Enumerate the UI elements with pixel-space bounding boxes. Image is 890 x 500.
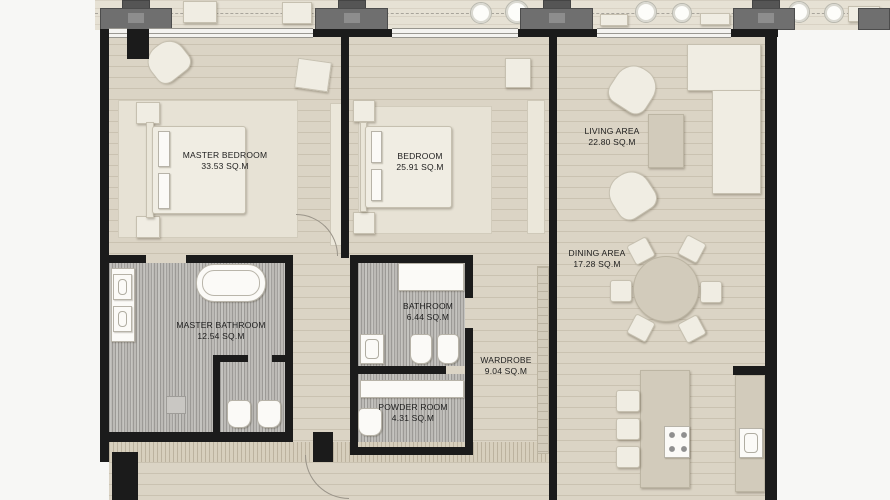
dining-table <box>633 256 699 322</box>
bench <box>294 58 332 92</box>
dining-chair <box>610 280 632 302</box>
room-label-wardrobe: WARDROBE 9.04 SQ.M <box>480 355 531 377</box>
balcony-lounger <box>183 1 217 23</box>
wall-living-divider <box>549 29 557 262</box>
wall-powder-top <box>358 366 446 374</box>
balcony-plant <box>824 3 844 23</box>
toilet <box>410 334 432 364</box>
room-area: 25.91 SQ.M <box>396 162 443 173</box>
bidet <box>437 334 459 364</box>
toilet <box>227 400 251 428</box>
sink <box>113 306 132 332</box>
balcony-plant <box>635 1 657 23</box>
room-name: LIVING AREA <box>584 126 639 137</box>
nightstand <box>136 102 160 124</box>
sink <box>113 274 132 300</box>
room-label-bedroom: BEDROOM 25.91 SQ.M <box>396 151 443 173</box>
room-area: 4.31 SQ.M <box>378 413 447 424</box>
room-name: WARDROBE <box>480 355 531 366</box>
wall-wc <box>272 355 285 362</box>
nightstand <box>353 100 375 122</box>
bar-stool <box>616 390 640 412</box>
coffee-table <box>648 114 684 168</box>
cooktop <box>664 426 690 458</box>
kitchen-sink <box>739 428 763 458</box>
room-area: 17.28 SQ.M <box>569 259 626 270</box>
room-label-living-area: LIVING AREA 22.80 SQ.M <box>584 126 639 148</box>
room-label-dining-area: DINING AREA 17.28 SQ.M <box>569 248 626 270</box>
wall-masterbath-right <box>285 255 293 432</box>
sink <box>360 334 384 364</box>
wall-kitchen <box>733 366 765 375</box>
nightstand <box>136 216 160 238</box>
wall-wc <box>213 355 220 432</box>
wall-masterbath-top <box>109 255 146 263</box>
bench <box>505 58 531 88</box>
room-area: 12.54 SQ.M <box>176 331 265 342</box>
room-name: BEDROOM <box>396 151 443 162</box>
sofa <box>712 90 761 194</box>
floor-plan: MASTER BEDROOM 33.53 SQ.M BEDROOM 25.91 … <box>0 0 890 500</box>
bidet <box>257 400 281 428</box>
wall-masterbath-bottom <box>100 432 293 442</box>
balcony-plant <box>470 2 492 24</box>
wardrobe-cabinet <box>527 100 545 234</box>
wall-bathroom-right <box>465 255 473 298</box>
room-name: MASTER BEDROOM <box>183 150 268 161</box>
window <box>597 28 731 38</box>
pillow <box>371 169 382 201</box>
window <box>392 28 518 38</box>
wall-bathroom-left <box>350 255 358 455</box>
room-area: 22.80 SQ.M <box>584 137 639 148</box>
wall-powder-bottom <box>350 447 473 455</box>
room-name: DINING AREA <box>569 248 626 259</box>
room-label-bathroom: BATHROOM 6.44 SQ.M <box>403 301 453 323</box>
wall-left <box>100 29 109 462</box>
pillow <box>371 131 382 163</box>
window <box>109 28 127 38</box>
bathtub <box>196 264 266 302</box>
room-label-master-bedroom: MASTER BEDROOM 33.53 SQ.M <box>183 150 268 172</box>
pillow <box>158 173 170 209</box>
wall-post <box>127 29 149 59</box>
column-detail <box>758 13 774 23</box>
balcony-planter <box>700 13 730 25</box>
wall-bathroom-right <box>465 328 473 374</box>
room-area: 9.04 SQ.M <box>480 366 531 377</box>
wall-wardrobe-right <box>549 262 557 500</box>
room-name: MASTER BATHROOM <box>176 320 265 331</box>
room-area: 33.53 SQ.M <box>183 161 268 172</box>
column-detail <box>549 13 565 23</box>
room-area: 6.44 SQ.M <box>403 312 453 323</box>
nightstand <box>353 212 375 234</box>
dining-chair <box>700 281 722 303</box>
wall-right <box>765 29 777 500</box>
room-name: POWDER ROOM <box>378 402 447 413</box>
sofa <box>687 44 761 91</box>
room-label-powder-room: POWDER ROOM 4.31 SQ.M <box>378 402 447 424</box>
balcony-plant <box>672 3 692 23</box>
shower <box>398 263 464 291</box>
wall-wc <box>220 355 248 362</box>
wall-bedroom-divider <box>341 29 349 258</box>
vanity <box>360 380 464 398</box>
room-label-master-bathroom: MASTER BATHROOM 12.54 SQ.M <box>176 320 265 342</box>
balcony-planter <box>600 14 628 26</box>
bar-stool <box>616 418 640 440</box>
structural-column <box>858 8 890 30</box>
wall-powder-right <box>465 374 473 455</box>
wardrobe-shelving <box>537 266 549 454</box>
pillow <box>158 131 170 167</box>
room-name: BATHROOM <box>403 301 453 312</box>
window <box>149 28 313 38</box>
floor-drain <box>166 396 186 414</box>
balcony-lounger <box>282 2 312 24</box>
wall-bottom-left <box>112 452 138 500</box>
bar-stool <box>616 446 640 468</box>
column-detail <box>344 13 360 23</box>
wall-bathroom-top <box>358 255 473 263</box>
wall-masterbath-top <box>186 255 293 263</box>
column-detail <box>128 13 144 23</box>
